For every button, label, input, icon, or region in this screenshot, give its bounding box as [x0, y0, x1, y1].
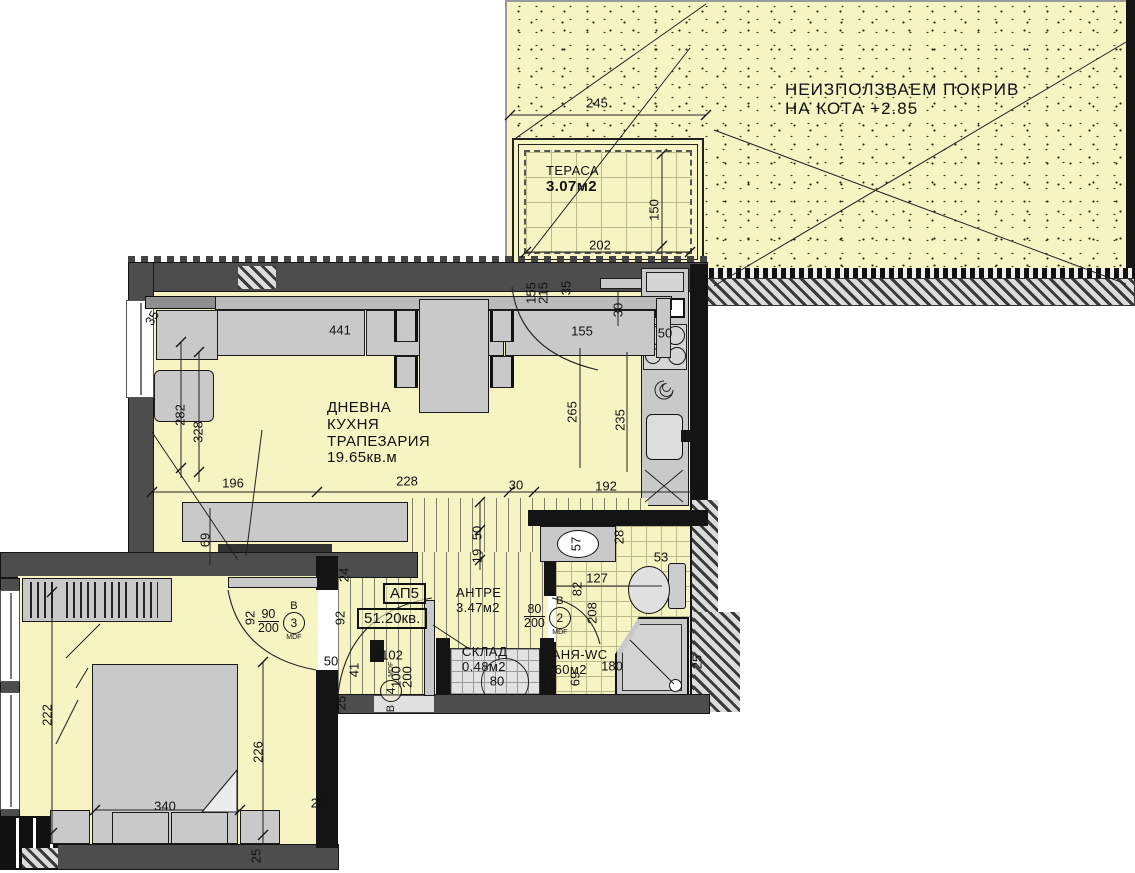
- bedroom-right-wall-a: [316, 556, 338, 590]
- toilet-tank: [668, 563, 686, 609]
- toilet-bowl: [628, 566, 670, 614]
- door2-tag: 80200 В2MDF: [524, 596, 571, 636]
- hanger-icons: [136, 582, 158, 618]
- hanger-icons: [66, 582, 96, 618]
- door4-id: В4MDF: [380, 662, 402, 713]
- bedroom-right-wall-b: [316, 670, 338, 848]
- sofa-chaise: [156, 310, 218, 360]
- storage-left-wall: [436, 638, 450, 698]
- roof-right-wall: [1126, 0, 1135, 284]
- dining-table: [419, 299, 489, 413]
- dimension-label: 50: [324, 654, 338, 669]
- bedroom-window-upper: [0, 590, 20, 682]
- dining-chair: [490, 310, 514, 342]
- door4-tag: В4MDF: [380, 658, 402, 716]
- top-wall-hatch-pier: [238, 266, 276, 289]
- bath-top-wall: [528, 510, 708, 526]
- shower-drain-icon: [669, 679, 682, 692]
- roof-wall-checker: [700, 268, 1135, 278]
- door2-size: 80200: [524, 603, 545, 630]
- hanger-icons: [104, 582, 128, 618]
- dining-chair: [394, 310, 418, 342]
- door2-id: В2MDF: [549, 596, 571, 636]
- apartment-area-box: 51.20кв.: [357, 608, 427, 629]
- dining-chair: [490, 356, 514, 388]
- hall-label: АНТРЕ3.47м2: [456, 586, 501, 615]
- kitchen-sink: [646, 414, 683, 460]
- nightstand-right: [240, 810, 280, 844]
- living-left-window: [126, 300, 154, 398]
- storage-label: СКЛАД0.48м2: [462, 645, 507, 674]
- dining-chair: [394, 356, 418, 388]
- bottom-wall-hatch-pier: [22, 848, 58, 868]
- bed-foot-cushion: [112, 812, 169, 844]
- bedroom-bottom-wall: [57, 844, 339, 870]
- bedroom-window-lower: [0, 692, 20, 810]
- apartment-id-box: АП5: [383, 583, 426, 604]
- sofa-cushion: [505, 310, 655, 356]
- door3-size: 90200: [258, 608, 279, 635]
- bedroom-door-leaf: [228, 577, 318, 588]
- roof-hatched-wall: [700, 278, 1135, 306]
- nightstand-left: [50, 810, 90, 844]
- storage-right-wall: [540, 638, 554, 698]
- terrace-label: ТЕРАСА3.07м2: [546, 164, 599, 195]
- bedroom-top-wall: [0, 552, 418, 578]
- faucet-icon: [681, 430, 690, 442]
- living-room-label: ДНЕВНАКУХНЯТРАПЕЗАРИЯ19.65кв.м: [327, 400, 430, 467]
- washbasin: [557, 530, 599, 558]
- tv-bench: [182, 502, 408, 542]
- floor-plan: НЕИЗПОЛЗВАЕМ ПОКРИВНА КОТА +2.85 ТЕРАСА3…: [0, 0, 1135, 873]
- armchair: [154, 370, 214, 422]
- roof-label: НЕИЗПОЛЗВАЕМ ПОКРИВНА КОТА +2.85: [785, 80, 1019, 118]
- bed-foot-cushion: [171, 812, 228, 844]
- door3-tag: 90200 В3MDF: [258, 601, 305, 641]
- sofa-armrest: [656, 298, 671, 358]
- door3-id: В3MDF: [283, 601, 305, 641]
- hanger-icons: [30, 582, 56, 618]
- fridge: [646, 272, 684, 292]
- sofa-cushion: [217, 310, 365, 356]
